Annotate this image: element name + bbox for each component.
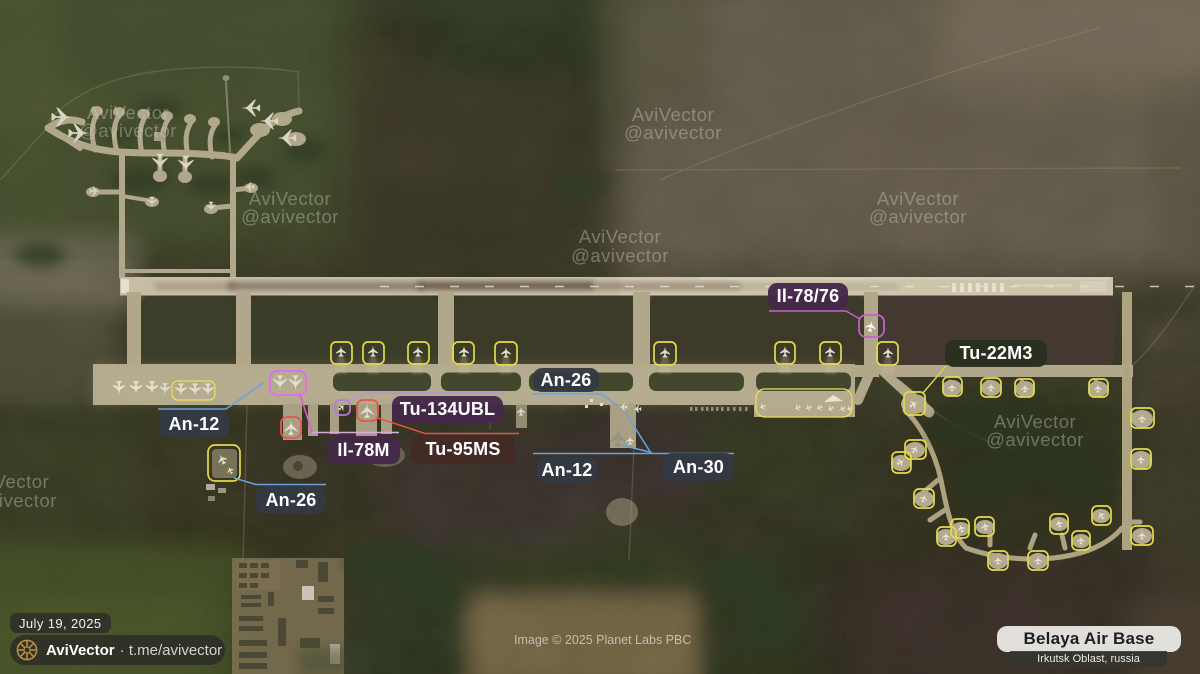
svg-text:@avivector: @avivector [571, 245, 669, 266]
svg-text:@avivector: @avivector [869, 206, 967, 227]
svg-text:AviVector: AviVector [0, 471, 49, 492]
svg-text:@avivector: @avivector [79, 120, 177, 141]
svg-text:AviVector: AviVector [579, 226, 661, 247]
svg-text:@avivector: @avivector [241, 206, 339, 227]
svg-text:@avivector: @avivector [624, 122, 722, 143]
svg-text:@avivector: @avivector [986, 429, 1084, 450]
svg-text:@avivector: @avivector [0, 490, 57, 511]
